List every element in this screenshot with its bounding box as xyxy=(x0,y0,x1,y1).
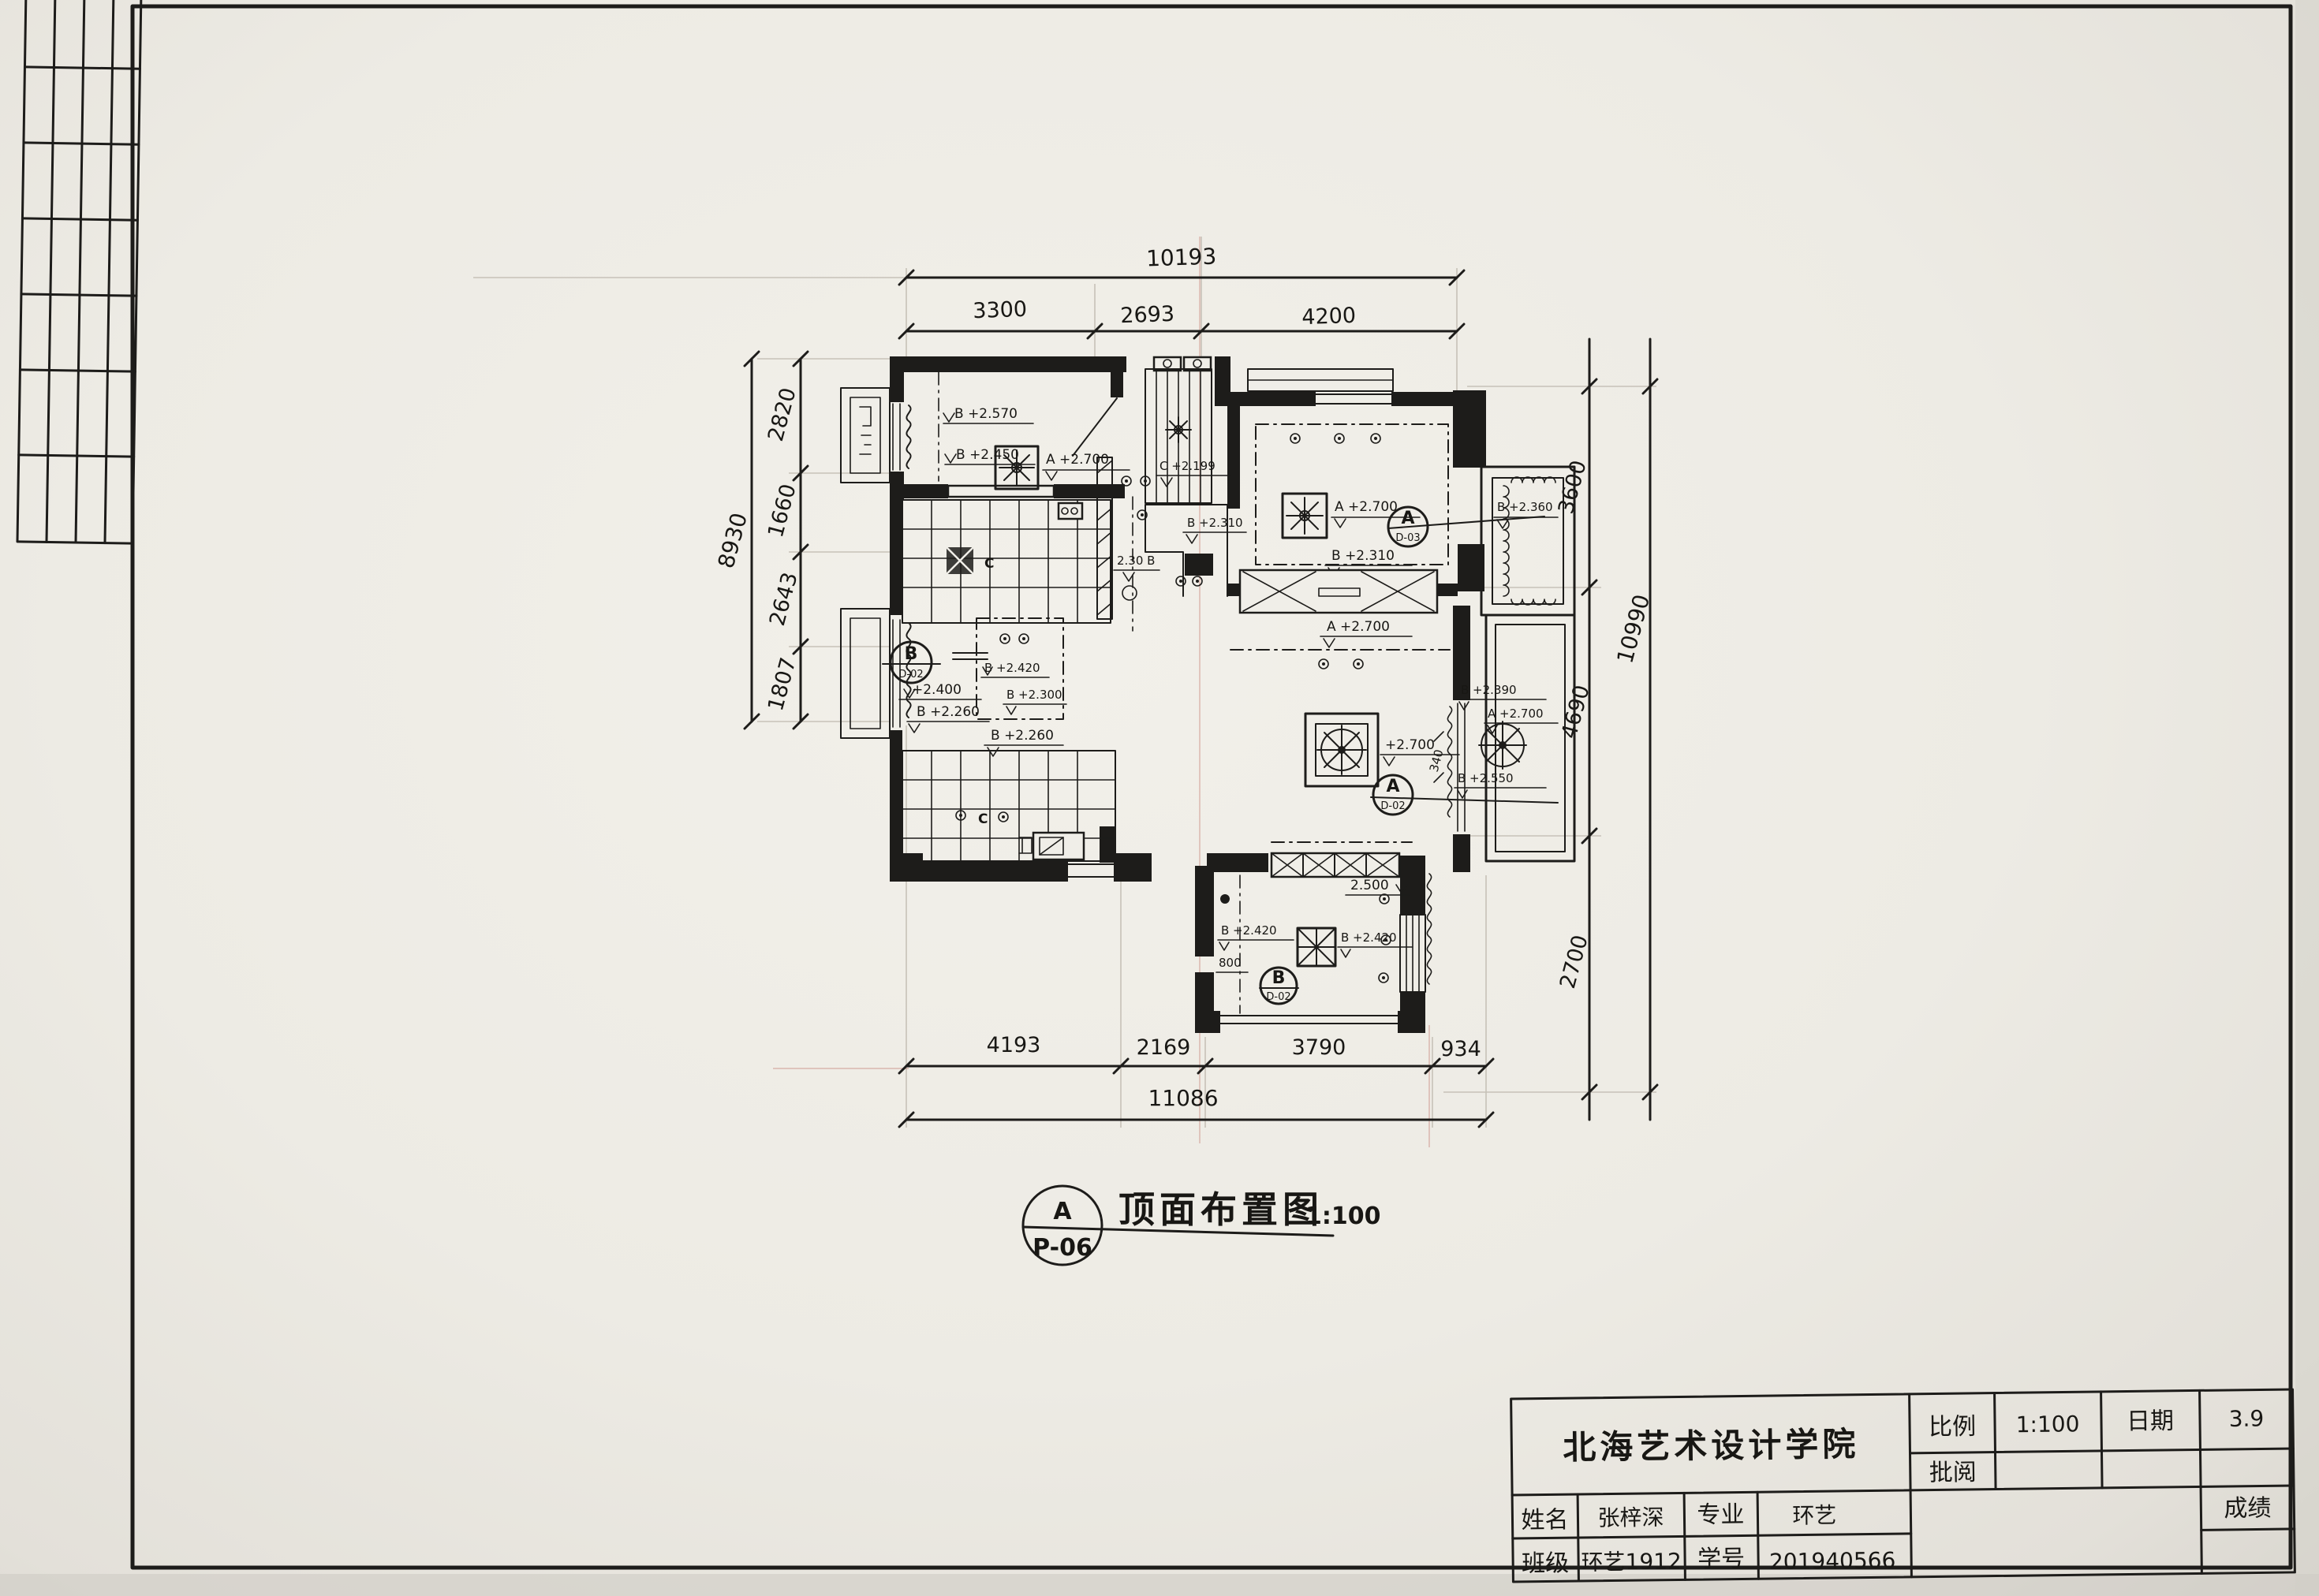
room-tag: B D-02 xyxy=(1260,968,1298,1004)
dim-right-overall: 10990 xyxy=(1611,591,1655,666)
date-value: 3.9 xyxy=(2229,1405,2265,1432)
label-dining-1: +2.400 xyxy=(912,682,962,698)
balcony: A +2.700 xyxy=(1479,615,1574,861)
class-label: 班级 xyxy=(1522,1549,1569,1578)
label-kitchen-c: C xyxy=(978,811,988,827)
desk-icon xyxy=(1019,833,1084,860)
dim-top-seg2: 2693 xyxy=(1120,302,1175,328)
drawing-sheet: 10193 3300 2693 4200 8930 2820 1660 2643… xyxy=(0,0,2319,1596)
id-label: 学号 xyxy=(1697,1545,1745,1573)
scale-value: 1:100 xyxy=(2016,1411,2080,1438)
hallway: C +2.199 B +2.310 2.30 B xyxy=(1114,369,1246,631)
name-value: 张梓深 xyxy=(1597,1505,1664,1531)
wardrobe xyxy=(1240,570,1437,613)
living-lamp-icon xyxy=(1305,714,1378,786)
dim-bottom-seg2: 2169 xyxy=(1137,1035,1191,1060)
label-beam-2500: 2.500 xyxy=(1350,878,1389,893)
class-value: 环艺1912 xyxy=(1581,1548,1682,1575)
curtain-wave-roomA xyxy=(906,405,910,468)
living-room: A +2.700 +2.700 A xyxy=(1230,619,1558,895)
label-dining-2: B +2.260 xyxy=(917,704,980,720)
curtain-wave-bottom xyxy=(1427,874,1431,984)
label-dining-c3: B +2.260 xyxy=(991,728,1054,744)
school-name: 北海艺术设计学院 xyxy=(1563,1425,1860,1467)
ceiling-lamp-icon xyxy=(1283,494,1327,538)
curtain-box-dining xyxy=(841,609,890,738)
dim-bottom-overall: 11086 xyxy=(1148,1085,1218,1111)
label-balcony-fan: A +2.700 xyxy=(1488,707,1544,721)
dim-left-overall: 8930 xyxy=(713,510,752,571)
dimension-top: 10193 3300 2693 4200 xyxy=(899,243,1464,338)
grade-label: 成绩 xyxy=(2224,1494,2271,1523)
kitchen-tiled-ceiling: C xyxy=(902,751,1115,861)
room-tag-letter: B xyxy=(905,644,918,664)
label-master-bottom: B +2.310 xyxy=(1331,548,1395,564)
label-roomA-1: B +2.570 xyxy=(954,406,1018,422)
label-living-top: A +2.700 xyxy=(1327,619,1390,635)
door-swing xyxy=(1073,398,1117,456)
dimension-bottom: 4193 2169 3790 934 11086 xyxy=(899,1033,1493,1127)
balcony-fan-icon xyxy=(1479,722,1526,769)
dim-bottom-seg1: 4193 xyxy=(987,1033,1041,1057)
dimension-right: 3600 4690 2700 10990 xyxy=(1554,339,1657,1120)
dim-left-seg4: 1807 xyxy=(764,655,801,714)
label-dining-c2: B +2.300 xyxy=(1006,688,1062,702)
label-hall-b2: 2.30 B xyxy=(1117,554,1155,568)
review-label: 批阅 xyxy=(1929,1459,1977,1487)
label-hall-c: C +2.199 xyxy=(1159,459,1216,473)
label-roomA-2: B +2.450 xyxy=(956,447,1019,463)
drawing-title-text: 顶面布置图 xyxy=(1118,1188,1324,1231)
beam-x-hatch xyxy=(1272,853,1399,877)
label-bottom-fan: B +2.420 xyxy=(1341,930,1397,945)
label-bath-c: C xyxy=(984,556,994,572)
hall-lamp-icon xyxy=(1166,417,1191,442)
room-tag-code: D-02 xyxy=(1380,800,1405,812)
title-tag-letter: A xyxy=(1053,1198,1072,1225)
dim-top-seg1: 3300 xyxy=(973,297,1028,323)
label-living-r1: B +2.390 xyxy=(1461,683,1517,697)
dim-bottom-seg4: 934 xyxy=(1440,1037,1481,1061)
floor-plan: A +2.700 B +2.570 B +2.450 C xyxy=(841,356,1574,1033)
dim-top-seg3: 4200 xyxy=(1301,304,1357,330)
dim-left-seg1: 2820 xyxy=(764,386,801,444)
room-tag-code: D-02 xyxy=(1266,991,1290,1003)
label-living-fan: +2.700 xyxy=(1385,737,1435,753)
date-label: 日期 xyxy=(2127,1408,2174,1436)
room-tag-code: D-03 xyxy=(1395,532,1420,544)
major-value: 环艺 xyxy=(1792,1502,1836,1529)
drawing-title: A P-06 顶面布置图 1:100 xyxy=(1023,1186,1381,1265)
scale-label: 比例 xyxy=(1929,1413,1976,1441)
bottom-lamp-icon xyxy=(1298,928,1335,966)
label-hall-b1: B +2.310 xyxy=(1187,516,1243,530)
sheet-frame xyxy=(0,0,2319,1596)
dimension-left: 8930 2820 1660 2643 1807 xyxy=(713,352,808,729)
room-tag: B D-02 xyxy=(883,642,940,683)
dim-top-overall: 10193 xyxy=(1146,243,1217,271)
label-bottom-800: 800 xyxy=(1219,956,1242,970)
name-label: 姓名 xyxy=(1521,1506,1568,1534)
room-tag-code: D-02 xyxy=(898,669,923,681)
dim-left-seg3: 2643 xyxy=(765,570,803,628)
label-dining-c1: B +2.420 xyxy=(984,661,1040,675)
blind-strip xyxy=(1400,915,1425,992)
room-tag-letter: A xyxy=(1386,777,1399,796)
bathroom-tiled-ceiling: C xyxy=(902,500,1111,623)
room-tag-letter: A xyxy=(1401,509,1414,528)
title-block: 北海艺术设计学院 比例 1:100 日期 3.9 批阅 姓名 张梓深 专业 环艺… xyxy=(1511,1389,2295,1582)
label-master-bay: B +2.360 xyxy=(1497,500,1553,514)
dining-room: B D-02 +2.400 B +2.260 B +2.420 B +2.300… xyxy=(841,609,1066,756)
id-value: 201940566 xyxy=(1769,1547,1896,1575)
major-label: 专业 xyxy=(1697,1501,1744,1529)
dim-bottom-seg3: 3790 xyxy=(1292,1035,1346,1060)
drawing-title-scale: 1:100 xyxy=(1305,1203,1381,1230)
column-grid-strip xyxy=(17,0,141,543)
label-bottom-1: B +2.420 xyxy=(1221,923,1277,938)
title-tag-code: P-06 xyxy=(1033,1234,1092,1262)
dim-right-seg3: 2700 xyxy=(1555,933,1593,991)
label-roomA-fan: A +2.700 xyxy=(1046,452,1109,468)
vent-lamp-icon xyxy=(947,547,973,574)
room-tag-letter: B xyxy=(1272,968,1286,988)
label-master-fan: A +2.700 xyxy=(1335,499,1398,515)
dim-left-seg2: 1660 xyxy=(764,482,801,540)
